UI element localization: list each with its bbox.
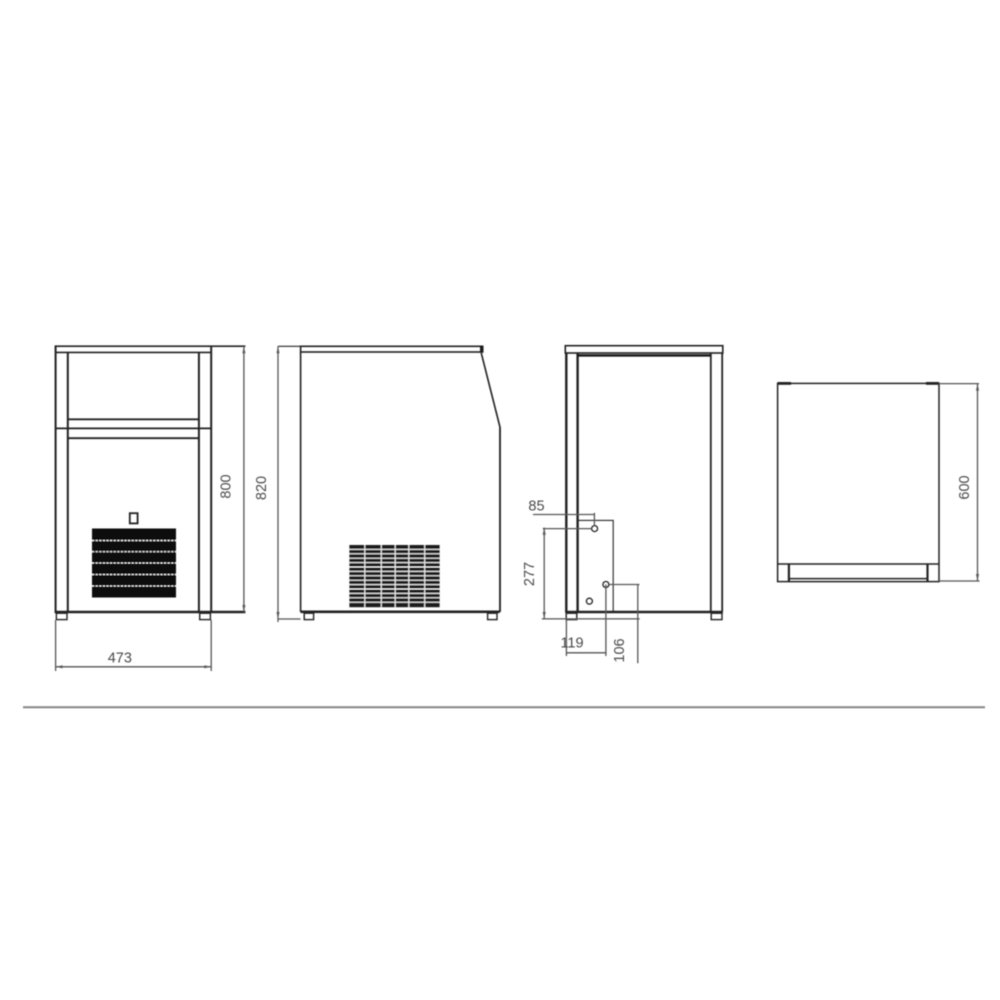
- svg-text:473: 473: [108, 651, 132, 667]
- svg-text:85: 85: [528, 499, 544, 515]
- svg-text:277: 277: [522, 562, 538, 586]
- svg-text:600: 600: [957, 475, 973, 499]
- svg-text:106: 106: [612, 638, 628, 662]
- svg-text:800: 800: [219, 474, 235, 498]
- svg-text:820: 820: [254, 476, 270, 500]
- svg-text:119: 119: [560, 635, 583, 651]
